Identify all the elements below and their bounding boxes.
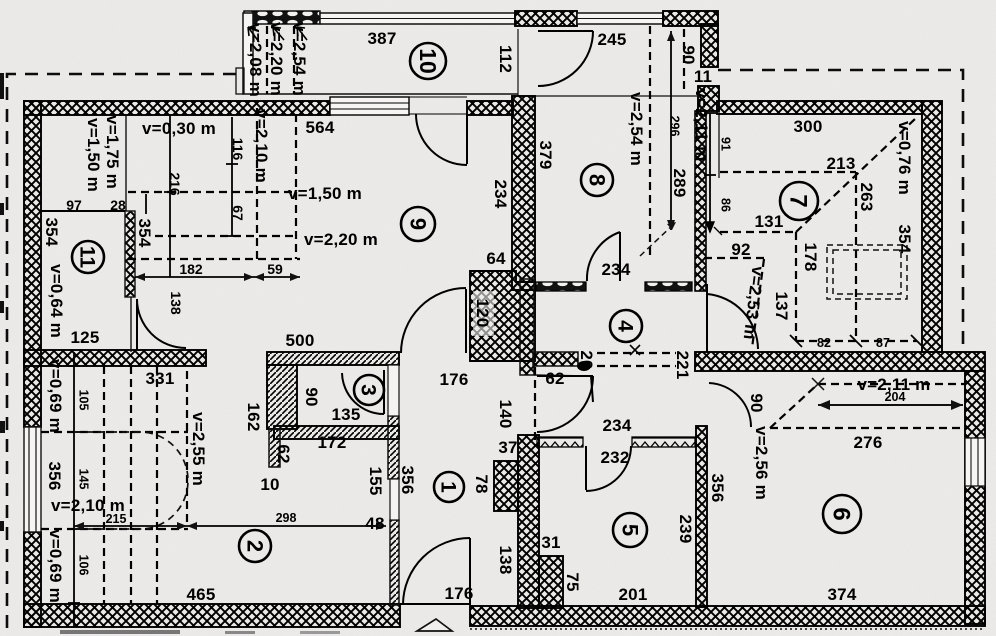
- svg-text:201: 201: [619, 585, 648, 604]
- svg-text:331: 331: [146, 369, 175, 388]
- svg-text:2: 2: [242, 540, 267, 552]
- svg-text:59: 59: [267, 261, 283, 277]
- svg-text:354: 354: [42, 218, 61, 247]
- svg-text:v=2,55 m: v=2,55 m: [189, 412, 208, 486]
- svg-text:48: 48: [365, 514, 384, 533]
- svg-text:234: 234: [602, 260, 631, 279]
- svg-text:9: 9: [405, 218, 430, 230]
- svg-text:11: 11: [76, 246, 99, 269]
- svg-text:138: 138: [496, 546, 515, 575]
- svg-text:354: 354: [895, 225, 914, 254]
- svg-text:300: 300: [794, 117, 823, 136]
- svg-text:75: 75: [563, 572, 582, 591]
- svg-text:176: 176: [445, 584, 474, 603]
- svg-text:v=1,50 m: v=1,50 m: [84, 118, 103, 192]
- svg-text:10: 10: [260, 475, 279, 494]
- svg-text:276: 276: [854, 433, 883, 452]
- svg-text:204: 204: [885, 390, 906, 404]
- svg-text:298: 298: [276, 511, 297, 525]
- svg-text:356: 356: [45, 462, 64, 491]
- svg-text:10: 10: [415, 48, 441, 74]
- svg-text:232: 232: [601, 448, 630, 467]
- svg-text:140: 140: [496, 400, 515, 429]
- svg-text:7: 7: [785, 194, 812, 207]
- svg-text:62: 62: [274, 444, 293, 463]
- svg-text:263: 263: [857, 183, 876, 212]
- svg-text:v=2,54 m: v=2,54 m: [627, 92, 646, 166]
- svg-text:20: 20: [577, 350, 596, 369]
- svg-text:37: 37: [498, 438, 517, 457]
- svg-text:178: 178: [801, 243, 820, 272]
- svg-text:234: 234: [491, 180, 510, 209]
- svg-text:78: 78: [472, 474, 491, 493]
- svg-text:239: 239: [676, 515, 695, 544]
- svg-text:v=2,56 m: v=2,56 m: [752, 426, 771, 500]
- svg-text:1: 1: [437, 481, 460, 493]
- svg-text:82: 82: [817, 336, 831, 350]
- svg-text:356: 356: [708, 474, 727, 503]
- svg-text:137: 137: [772, 292, 791, 321]
- svg-text:172: 172: [318, 433, 347, 452]
- svg-text:6: 6: [828, 507, 855, 520]
- svg-text:374: 374: [828, 585, 857, 604]
- svg-text:105: 105: [77, 390, 91, 411]
- svg-text:3: 3: [357, 384, 380, 396]
- svg-text:356: 356: [398, 466, 417, 495]
- svg-text:97: 97: [66, 197, 82, 213]
- svg-text:v=2,20 m: v=2,20 m: [304, 230, 378, 249]
- svg-text:28: 28: [110, 197, 126, 213]
- svg-text:213: 213: [827, 154, 856, 173]
- svg-text:564: 564: [306, 118, 335, 137]
- svg-text:182: 182: [179, 261, 203, 277]
- svg-text:v=1,75 m: v=1,75 m: [103, 115, 122, 189]
- svg-text:5: 5: [617, 524, 642, 536]
- svg-text:131: 131: [755, 212, 784, 231]
- svg-text:155: 155: [366, 467, 385, 496]
- svg-text:120: 120: [473, 299, 492, 328]
- svg-text:v=2,08 m: v=2,08 m: [246, 23, 265, 97]
- svg-text:11: 11: [694, 67, 712, 86]
- svg-text:176: 176: [440, 370, 469, 389]
- svg-text:v=0,69 m: v=0,69 m: [46, 529, 65, 603]
- svg-text:234: 234: [603, 416, 632, 435]
- svg-text:v=1,50 m: v=1,50 m: [288, 184, 362, 203]
- svg-text:92: 92: [731, 240, 750, 259]
- svg-text:62: 62: [545, 369, 564, 388]
- svg-text:216: 216: [167, 172, 183, 196]
- svg-text:145: 145: [77, 469, 91, 490]
- svg-text:64: 64: [486, 249, 506, 268]
- svg-text:500: 500: [286, 331, 315, 350]
- svg-text:106: 106: [77, 555, 91, 576]
- svg-text:v=2,20 m: v=2,20 m: [267, 22, 286, 96]
- svg-text:90: 90: [679, 45, 698, 64]
- svg-text:387: 387: [368, 29, 397, 48]
- svg-text:245: 245: [598, 30, 627, 49]
- svg-text:4: 4: [614, 320, 637, 332]
- svg-text:135: 135: [332, 405, 361, 424]
- svg-text:465: 465: [187, 585, 216, 604]
- svg-text:221: 221: [673, 351, 692, 380]
- svg-text:138: 138: [168, 291, 184, 315]
- svg-text:354: 354: [135, 219, 154, 248]
- svg-text:v=0,69 m: v=0,69 m: [46, 359, 65, 433]
- svg-text:162: 162: [244, 403, 263, 432]
- svg-text:215: 215: [106, 512, 127, 526]
- svg-text:v=2,11 m: v=2,11 m: [692, 89, 711, 162]
- svg-text:v=0,76 m: v=0,76 m: [895, 121, 914, 195]
- svg-text:v=0,30 m: v=0,30 m: [142, 119, 216, 138]
- svg-text:87: 87: [876, 336, 890, 350]
- svg-text:296: 296: [668, 116, 682, 137]
- svg-text:v=2,54 m: v=2,54 m: [290, 22, 309, 96]
- svg-text:8: 8: [584, 174, 609, 186]
- svg-text:67: 67: [230, 205, 246, 221]
- svg-text:91: 91: [719, 137, 733, 151]
- svg-text:v=0,64 m: v=0,64 m: [47, 264, 66, 338]
- svg-text:86: 86: [719, 198, 733, 212]
- svg-text:90: 90: [302, 387, 321, 406]
- svg-text:112: 112: [496, 45, 515, 73]
- svg-text:31: 31: [541, 533, 560, 552]
- svg-text:289: 289: [670, 169, 689, 198]
- svg-text:379: 379: [536, 141, 555, 170]
- svg-text:116: 116: [230, 138, 246, 161]
- svg-text:125: 125: [71, 328, 100, 347]
- svg-text:90: 90: [747, 393, 766, 412]
- svg-text:v=2,10 m: v=2,10 m: [252, 109, 271, 183]
